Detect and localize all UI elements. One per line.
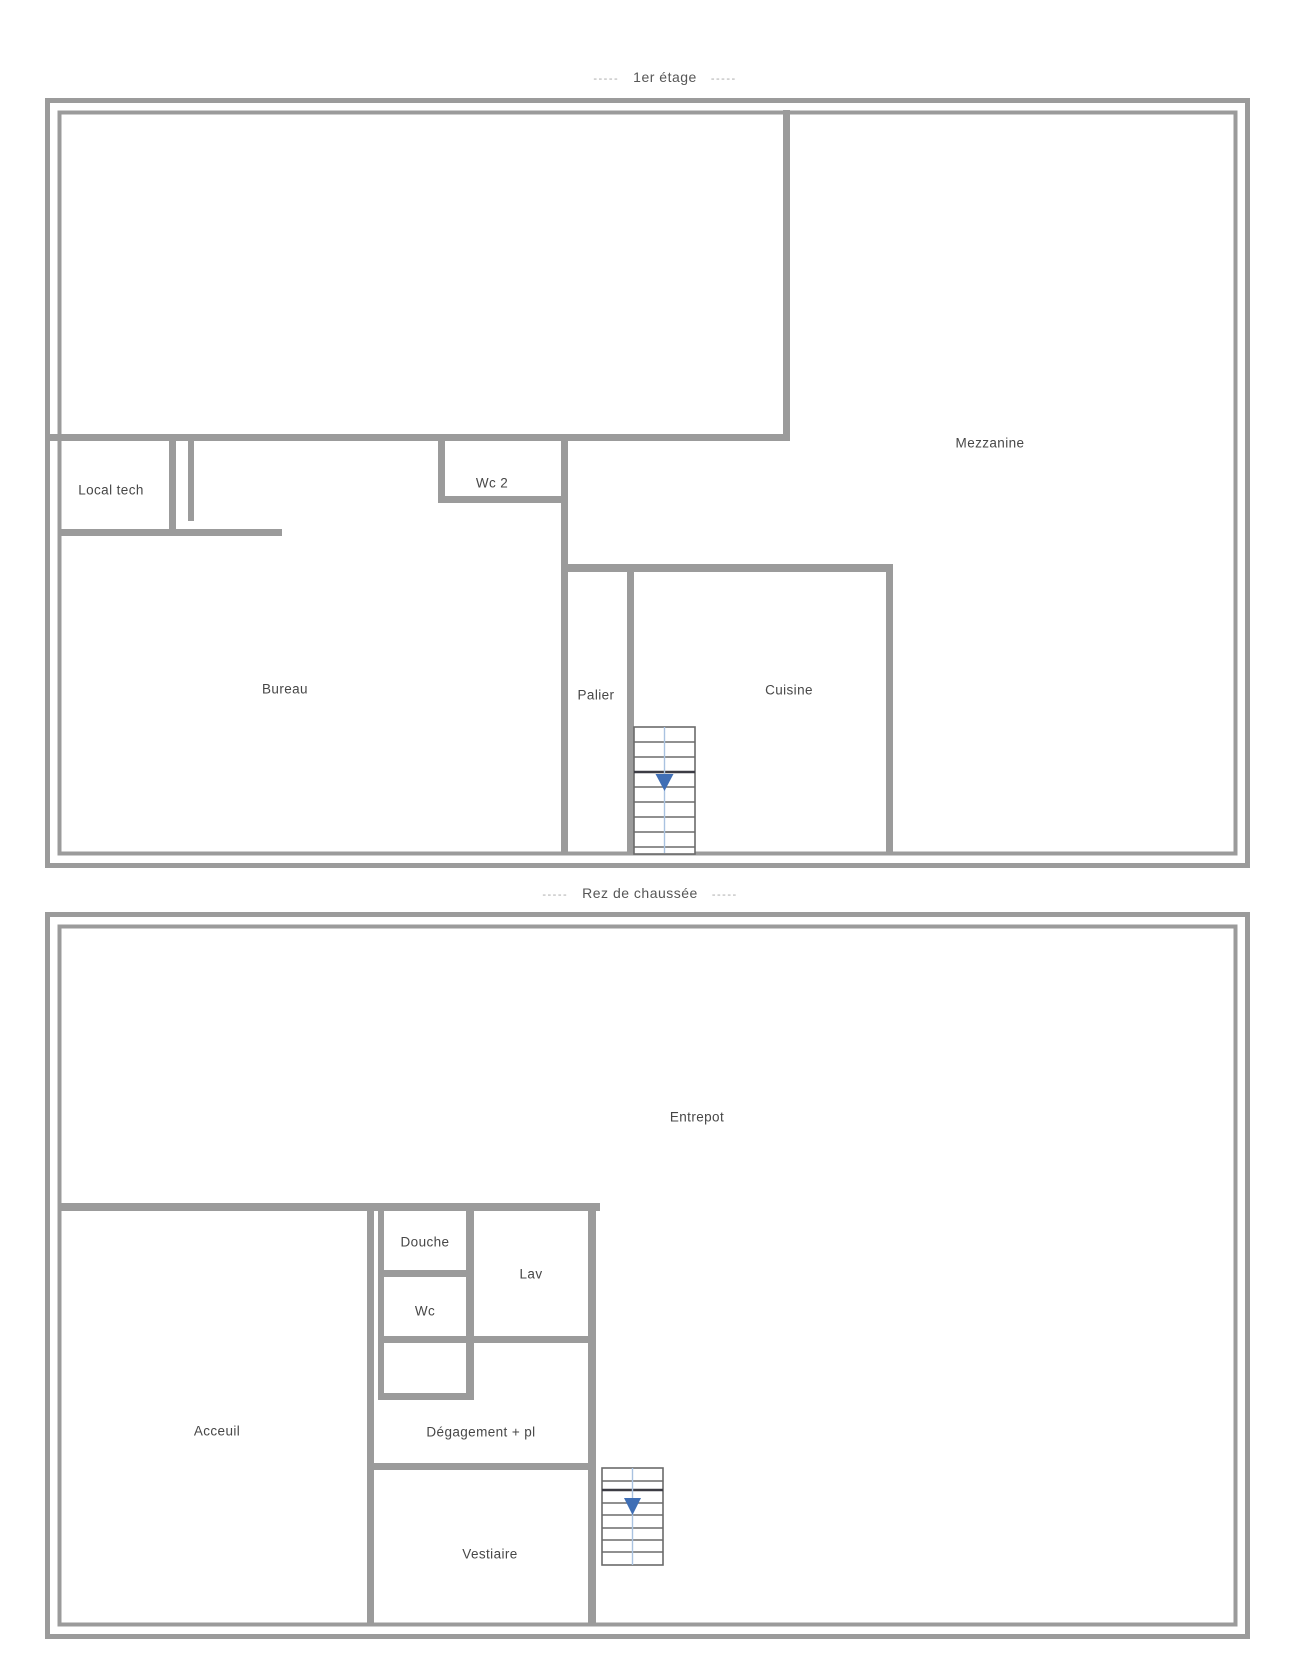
- wall: [378, 1393, 474, 1400]
- room-label-entrepot: Entrepot: [670, 1110, 724, 1125]
- first-floor-plan: -----1er étage-----: [45, 69, 1248, 866]
- room-label-local-tech: Local tech: [78, 483, 144, 498]
- wall: [783, 110, 790, 441]
- ground-floor-title-label: Rez de chaussée: [582, 885, 698, 901]
- title-dashes: -----: [712, 889, 738, 901]
- wall: [378, 1211, 384, 1400]
- first-floor-title: -----1er étage-----: [593, 69, 736, 85]
- room-label-acceuil: Acceuil: [194, 1424, 240, 1439]
- room-label-lav: Lav: [520, 1267, 543, 1282]
- wall: [438, 441, 445, 503]
- floor-plan-page: -----1er étage-----: [0, 0, 1300, 1669]
- wall: [466, 1211, 474, 1400]
- staircase: [602, 1468, 663, 1565]
- ground-floor-plan: -----Rez de chaussée-----: [48, 885, 1248, 1637]
- room-label-vestiaire: Vestiaire: [462, 1547, 517, 1562]
- wall: [561, 441, 568, 855]
- wall: [60, 529, 282, 536]
- wall: [45, 434, 790, 441]
- wall: [561, 564, 893, 572]
- room-label-mezzanine: Mezzanine: [956, 436, 1025, 451]
- title-dashes: -----: [711, 73, 737, 85]
- wall: [438, 496, 568, 503]
- first-floor-title-label: 1er étage: [633, 69, 697, 85]
- wall: [367, 1211, 374, 1623]
- ground-floor-title: -----Rez de chaussée-----: [542, 885, 737, 901]
- room-label-douche: Douche: [401, 1235, 450, 1250]
- wall: [378, 1270, 474, 1277]
- room-label-cuisine: Cuisine: [765, 683, 813, 698]
- title-dashes: -----: [593, 73, 619, 85]
- wall: [627, 572, 634, 855]
- wall: [588, 1203, 596, 1623]
- room-label-wc: Wc: [415, 1304, 435, 1319]
- wall: [886, 572, 893, 855]
- room-label-bureau: Bureau: [262, 682, 308, 697]
- room-label-wc2: Wc 2: [476, 476, 508, 491]
- room-label-palier: Palier: [578, 688, 615, 703]
- floor-plans-svg: -----1er étage-----: [0, 0, 1300, 1669]
- wall: [367, 1463, 596, 1470]
- wall: [378, 1336, 596, 1343]
- wall: [60, 1203, 600, 1211]
- wall: [169, 441, 176, 536]
- title-dashes: -----: [542, 889, 568, 901]
- wall: [188, 441, 194, 521]
- room-label-degagement: Dégagement + pl: [426, 1425, 535, 1440]
- staircase: [634, 727, 695, 854]
